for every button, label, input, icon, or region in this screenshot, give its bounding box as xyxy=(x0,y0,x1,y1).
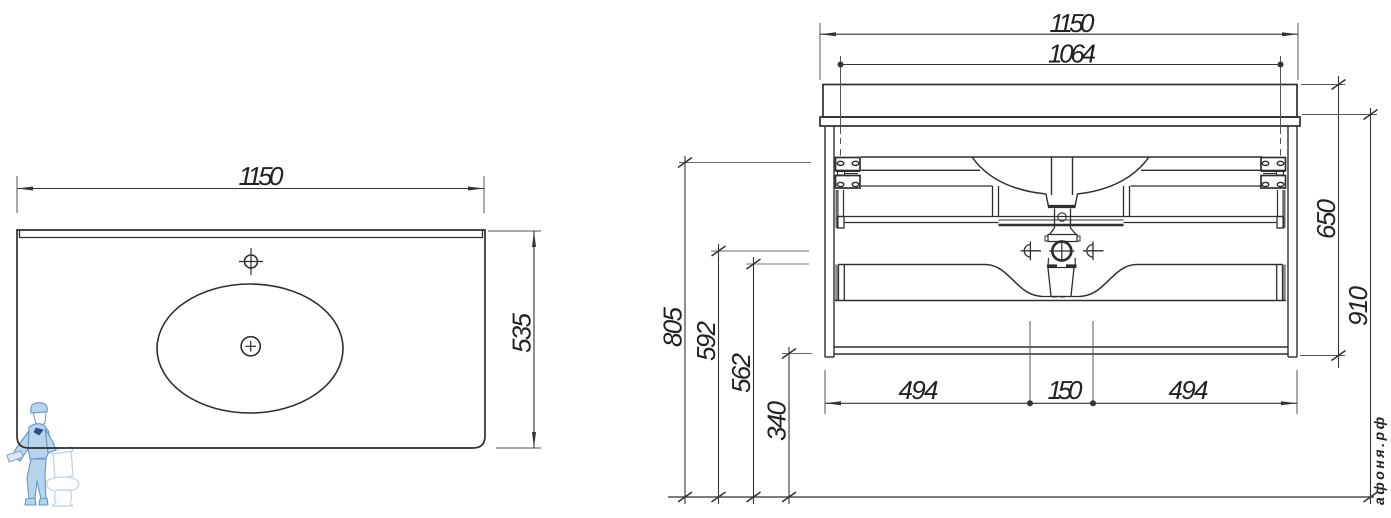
svg-text:910: 910 xyxy=(1343,285,1373,326)
svg-text:1150: 1150 xyxy=(1050,8,1096,38)
svg-text:592: 592 xyxy=(691,320,721,361)
svg-text:494: 494 xyxy=(1169,375,1209,405)
svg-text:афоня.рф: афоня.рф xyxy=(1371,415,1387,505)
svg-text:494: 494 xyxy=(899,375,939,405)
svg-text:805: 805 xyxy=(658,306,688,347)
svg-text:535: 535 xyxy=(507,312,537,353)
svg-text:340: 340 xyxy=(762,400,792,441)
svg-text:150: 150 xyxy=(1048,375,1084,405)
svg-text:1064: 1064 xyxy=(1048,39,1096,69)
svg-text:650: 650 xyxy=(1311,198,1341,239)
svg-text:1150: 1150 xyxy=(239,161,285,191)
svg-text:562: 562 xyxy=(726,352,756,393)
